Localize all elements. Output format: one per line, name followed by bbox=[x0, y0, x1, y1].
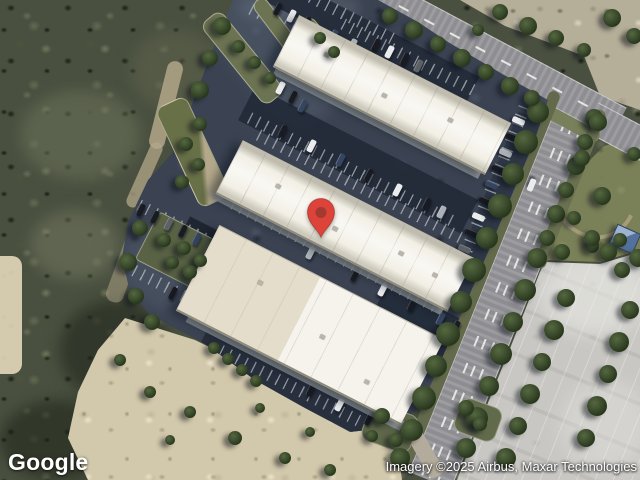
tree bbox=[627, 147, 640, 161]
tree bbox=[584, 230, 600, 246]
tree bbox=[462, 258, 486, 282]
tree bbox=[520, 384, 540, 404]
tree bbox=[492, 4, 508, 20]
tree bbox=[144, 314, 160, 330]
tree bbox=[132, 220, 148, 236]
tree bbox=[509, 417, 527, 435]
tree bbox=[614, 262, 630, 278]
tree bbox=[458, 400, 474, 416]
tree bbox=[192, 158, 205, 171]
tree bbox=[305, 427, 315, 437]
tree bbox=[587, 396, 607, 416]
satellite-map-canvas[interactable]: Google Imagery ©2025 Airbus, Maxar Techn… bbox=[0, 0, 640, 480]
tree bbox=[228, 431, 242, 445]
map-attribution: Imagery ©2025 Airbus, Maxar Technologies bbox=[386, 459, 637, 474]
tree bbox=[547, 205, 565, 223]
tree bbox=[603, 9, 621, 27]
tree bbox=[621, 301, 639, 319]
tree bbox=[514, 279, 536, 301]
tree bbox=[232, 40, 245, 53]
tree bbox=[157, 233, 171, 247]
tree bbox=[401, 419, 423, 441]
tree bbox=[599, 243, 617, 261]
tree bbox=[629, 249, 640, 267]
trees-layer bbox=[0, 0, 640, 480]
tree bbox=[183, 265, 197, 279]
tree bbox=[175, 175, 189, 189]
tree bbox=[599, 365, 617, 383]
tree bbox=[213, 17, 231, 35]
tree bbox=[514, 130, 538, 154]
tree bbox=[366, 430, 378, 442]
tree bbox=[478, 64, 494, 80]
tree bbox=[558, 182, 574, 198]
tree bbox=[374, 408, 390, 424]
tree bbox=[184, 406, 196, 418]
tree bbox=[488, 194, 512, 218]
tree bbox=[248, 56, 261, 69]
tree bbox=[519, 17, 537, 35]
tree bbox=[328, 46, 340, 58]
tree bbox=[255, 403, 265, 413]
tree bbox=[179, 137, 193, 151]
tree bbox=[577, 134, 593, 150]
tree bbox=[208, 342, 220, 354]
tree bbox=[412, 386, 436, 410]
tree bbox=[557, 289, 575, 307]
tree bbox=[128, 288, 144, 304]
tree bbox=[191, 81, 209, 99]
tree bbox=[456, 438, 476, 458]
tree bbox=[577, 429, 595, 447]
tree bbox=[314, 32, 326, 44]
marker-inner-dot bbox=[316, 207, 327, 218]
tree bbox=[539, 230, 555, 246]
google-logo[interactable]: Google bbox=[8, 449, 88, 476]
tree bbox=[193, 117, 207, 131]
tree bbox=[324, 464, 336, 476]
tree bbox=[202, 50, 218, 66]
tree bbox=[577, 43, 591, 57]
tree bbox=[524, 90, 540, 106]
tree bbox=[544, 320, 564, 340]
tree bbox=[490, 343, 512, 365]
tree bbox=[567, 211, 581, 225]
tree bbox=[626, 28, 640, 44]
tree bbox=[533, 353, 551, 371]
tree bbox=[589, 113, 607, 131]
tree bbox=[548, 30, 564, 46]
tree bbox=[382, 8, 398, 24]
tree bbox=[527, 248, 547, 268]
tree bbox=[574, 150, 590, 166]
location-marker[interactable] bbox=[306, 197, 336, 240]
tree bbox=[144, 386, 156, 398]
tree bbox=[501, 77, 519, 95]
tree bbox=[502, 163, 524, 185]
tree bbox=[279, 452, 291, 464]
tree bbox=[503, 312, 523, 332]
tree bbox=[472, 24, 484, 36]
tree bbox=[222, 353, 234, 365]
tree bbox=[194, 254, 207, 267]
tree bbox=[609, 332, 629, 352]
tree bbox=[430, 36, 446, 52]
tree bbox=[453, 49, 471, 67]
tree bbox=[473, 417, 487, 431]
tree bbox=[389, 433, 403, 447]
tree bbox=[236, 364, 248, 376]
tree bbox=[114, 354, 126, 366]
tree bbox=[405, 21, 423, 39]
tree bbox=[250, 375, 262, 387]
tree bbox=[479, 376, 499, 396]
tree bbox=[593, 187, 611, 205]
tree bbox=[177, 241, 191, 255]
tree bbox=[476, 227, 498, 249]
tree bbox=[166, 256, 179, 269]
tree bbox=[119, 253, 137, 271]
tree bbox=[425, 355, 447, 377]
tree bbox=[554, 244, 570, 260]
tree bbox=[450, 291, 472, 313]
tree bbox=[264, 72, 276, 84]
tree bbox=[436, 322, 460, 346]
tree bbox=[613, 233, 627, 247]
tree bbox=[165, 435, 175, 445]
